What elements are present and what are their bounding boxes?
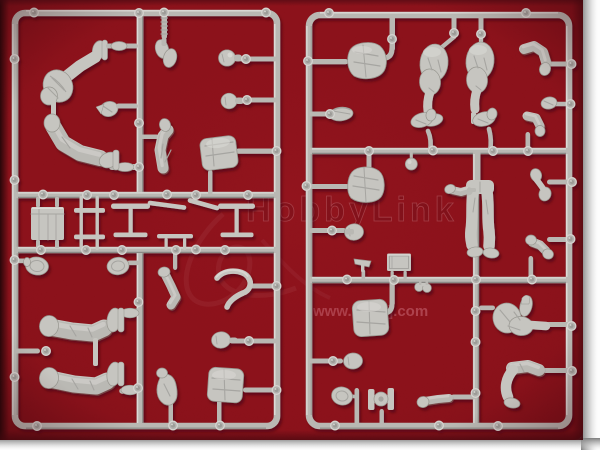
svg-text:www.: www.	[312, 303, 352, 320]
